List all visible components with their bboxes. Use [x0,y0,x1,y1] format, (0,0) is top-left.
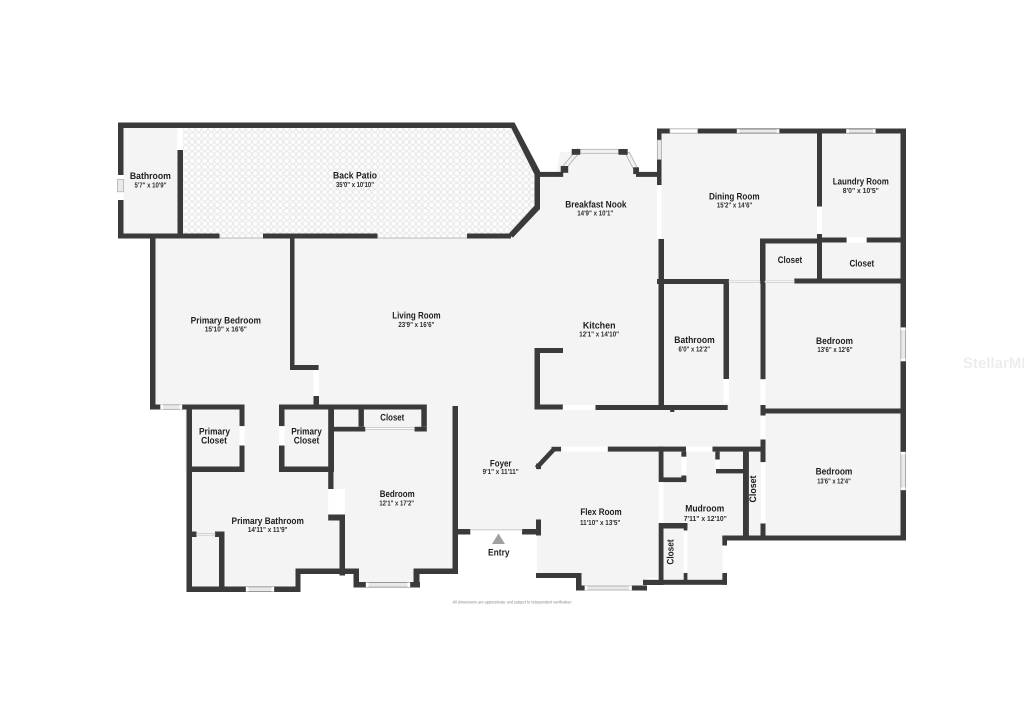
svg-text:15'2" x 14'6": 15'2" x 14'6" [717,201,752,210]
svg-text:35'0" x 10'10": 35'0" x 10'10" [336,180,374,189]
svg-text:11'10" x 13'5": 11'10" x 13'5" [580,518,621,527]
svg-text:Closet: Closet [849,259,874,270]
svg-text:6'0" x 12'2": 6'0" x 12'2" [679,344,711,353]
svg-text:12'1" x 14'10": 12'1" x 14'10" [579,329,619,338]
svg-text:12'1" x 17'2": 12'1" x 17'2" [379,498,414,507]
svg-text:Closet: Closet [748,475,759,503]
svg-text:Flex Room: Flex Room [580,507,621,518]
svg-text:All dimensions are approximate: All dimensions are approximate and subje… [453,600,572,605]
svg-text:8'0" x 10'5": 8'0" x 10'5" [843,186,879,195]
svg-text:7'11" x 12'10": 7'11" x 12'10" [684,514,727,523]
svg-text:Entry: Entry [488,547,510,558]
svg-text:9'1" x 11'11": 9'1" x 11'11" [483,467,519,476]
svg-text:23'9" x 16'6": 23'9" x 16'6" [398,320,434,329]
svg-text:Closet: Closet [294,435,320,446]
svg-text:14'11" x 11'9": 14'11" x 11'9" [248,525,288,534]
svg-text:13'6" x 12'6": 13'6" x 12'6" [817,345,852,354]
svg-text:Closet: Closet [778,255,803,266]
svg-text:Closet: Closet [201,435,228,446]
svg-text:15'10" x 16'6": 15'10" x 16'6" [205,325,247,334]
svg-text:13'6" x 12'4": 13'6" x 12'4" [817,477,851,486]
svg-text:Closet: Closet [380,413,405,424]
svg-text:StellarMLS: StellarMLS [963,355,1024,372]
svg-text:14'9" x 10'1": 14'9" x 10'1" [577,209,613,218]
svg-text:5'7" x 10'9": 5'7" x 10'9" [135,180,167,189]
svg-text:Closet: Closet [666,539,677,565]
